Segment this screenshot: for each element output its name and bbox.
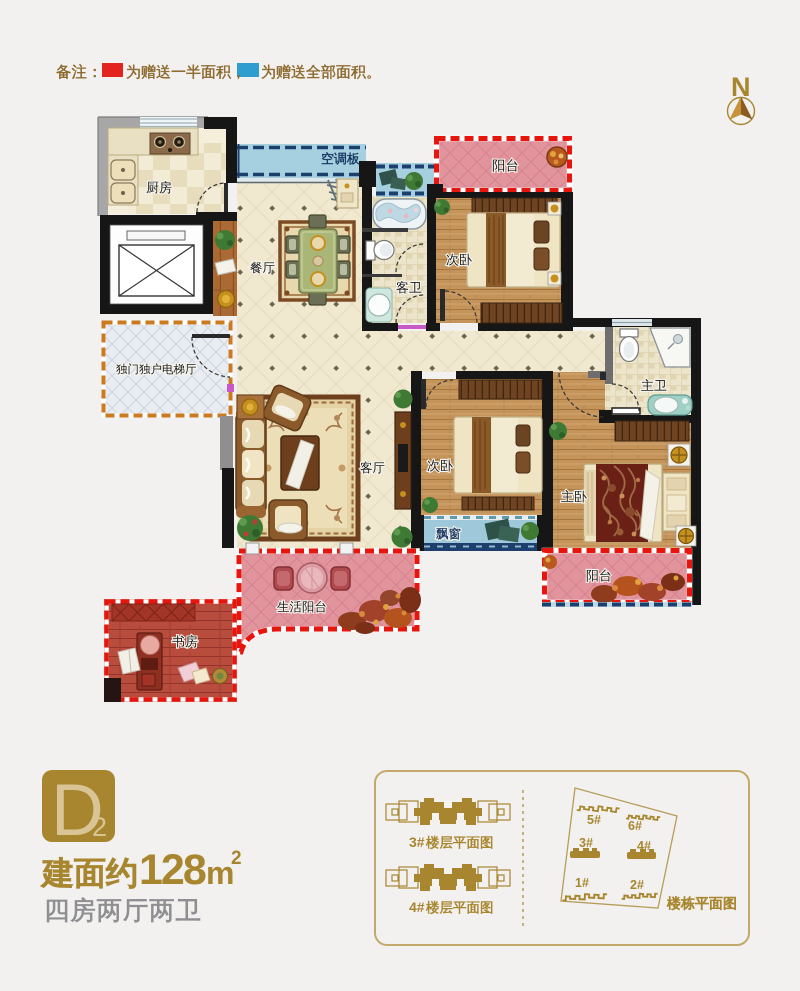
svg-text:2#: 2# [630,878,644,892]
svg-text:3#: 3# [579,836,593,850]
svg-text:2: 2 [231,848,242,869]
svg-text:2: 2 [92,812,107,842]
svg-text:3#: 3# [409,834,425,850]
svg-text:1#: 1# [575,876,589,890]
svg-text:4#: 4# [637,839,651,853]
svg-text:4#: 4# [409,899,425,915]
svg-text:5#: 5# [587,813,601,827]
svg-text:128: 128 [139,846,206,894]
svg-text:6#: 6# [628,819,642,833]
